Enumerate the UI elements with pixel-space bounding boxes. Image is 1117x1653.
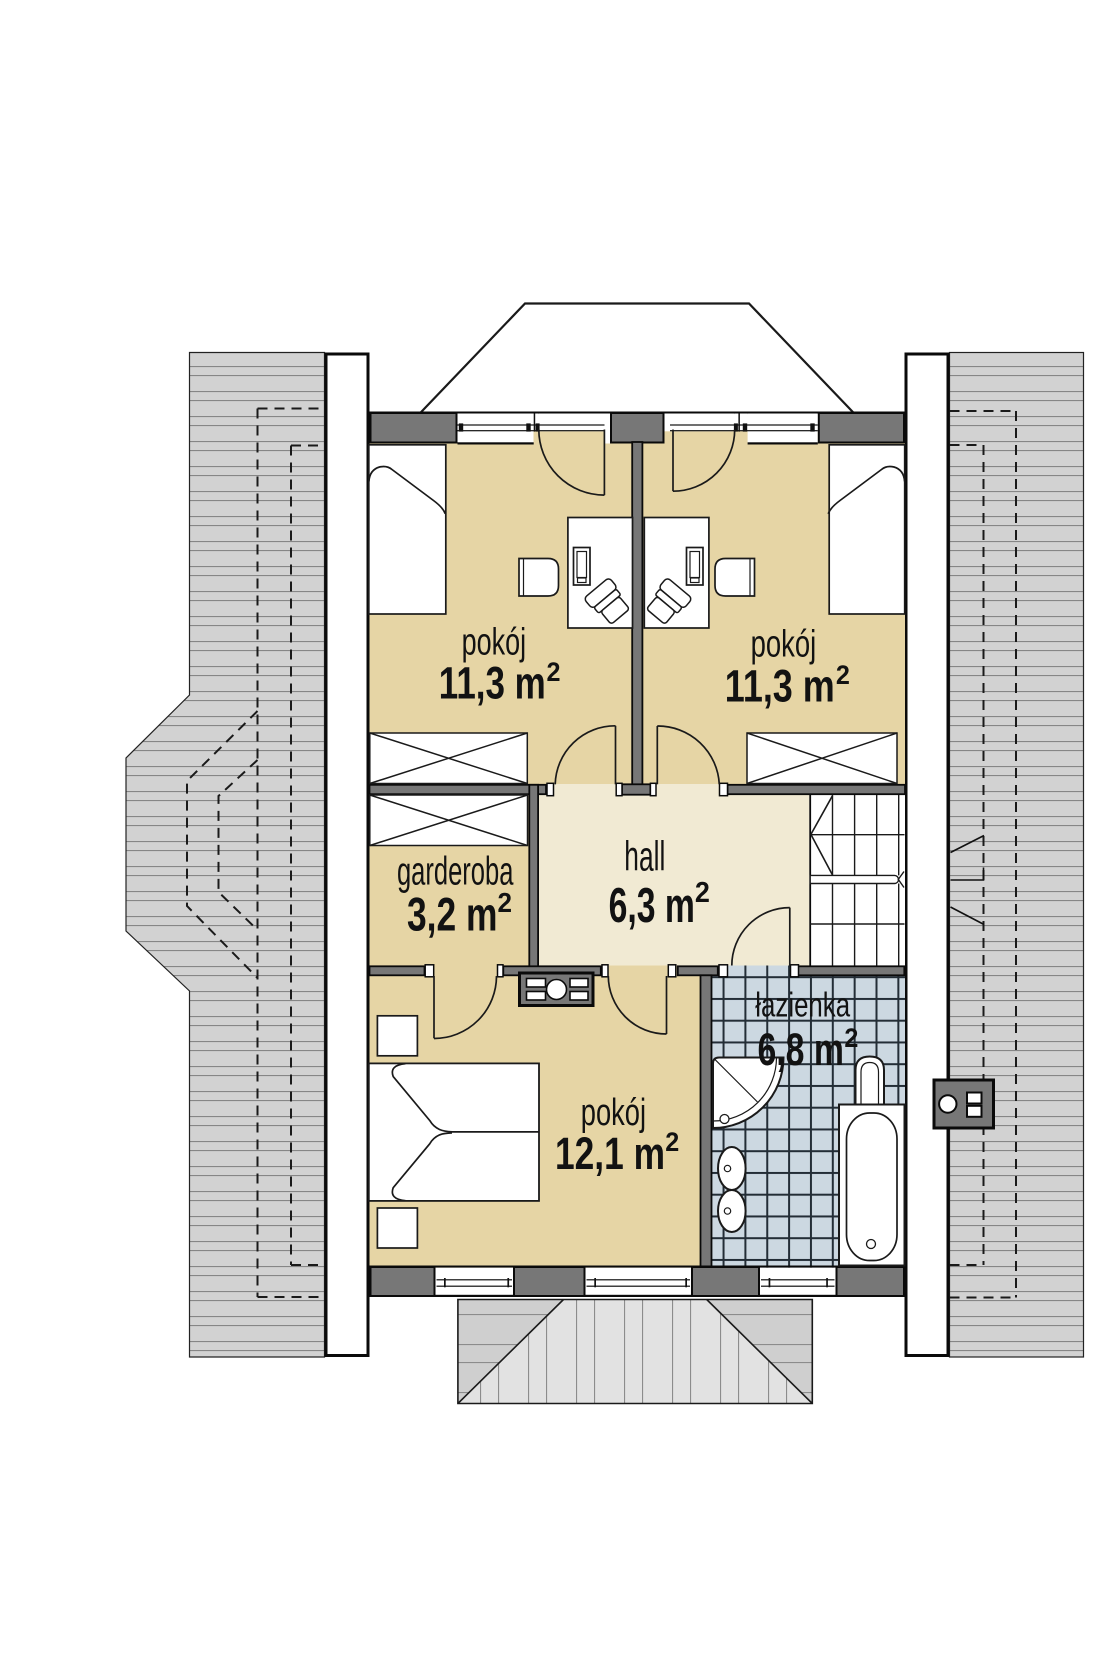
svg-text:pokój: pokój [751, 624, 817, 666]
svg-text:2: 2 [665, 1127, 679, 1157]
svg-text:6,3 m: 6,3 m [609, 879, 695, 933]
svg-text:11,3 m: 11,3 m [725, 660, 835, 711]
svg-text:2: 2 [695, 877, 710, 909]
svg-text:12,1 m: 12,1 m [555, 1128, 665, 1179]
svg-text:łazienka: łazienka [755, 987, 850, 1025]
svg-text:2: 2 [844, 1023, 858, 1053]
svg-text:6,8 m: 6,8 m [757, 1024, 844, 1075]
svg-text:11,3 m: 11,3 m [439, 657, 546, 708]
svg-text:2: 2 [498, 887, 513, 918]
svg-text:2: 2 [836, 660, 850, 690]
svg-text:hall: hall [624, 833, 665, 880]
svg-text:2: 2 [547, 657, 561, 687]
svg-text:3,2 m: 3,2 m [407, 888, 498, 941]
